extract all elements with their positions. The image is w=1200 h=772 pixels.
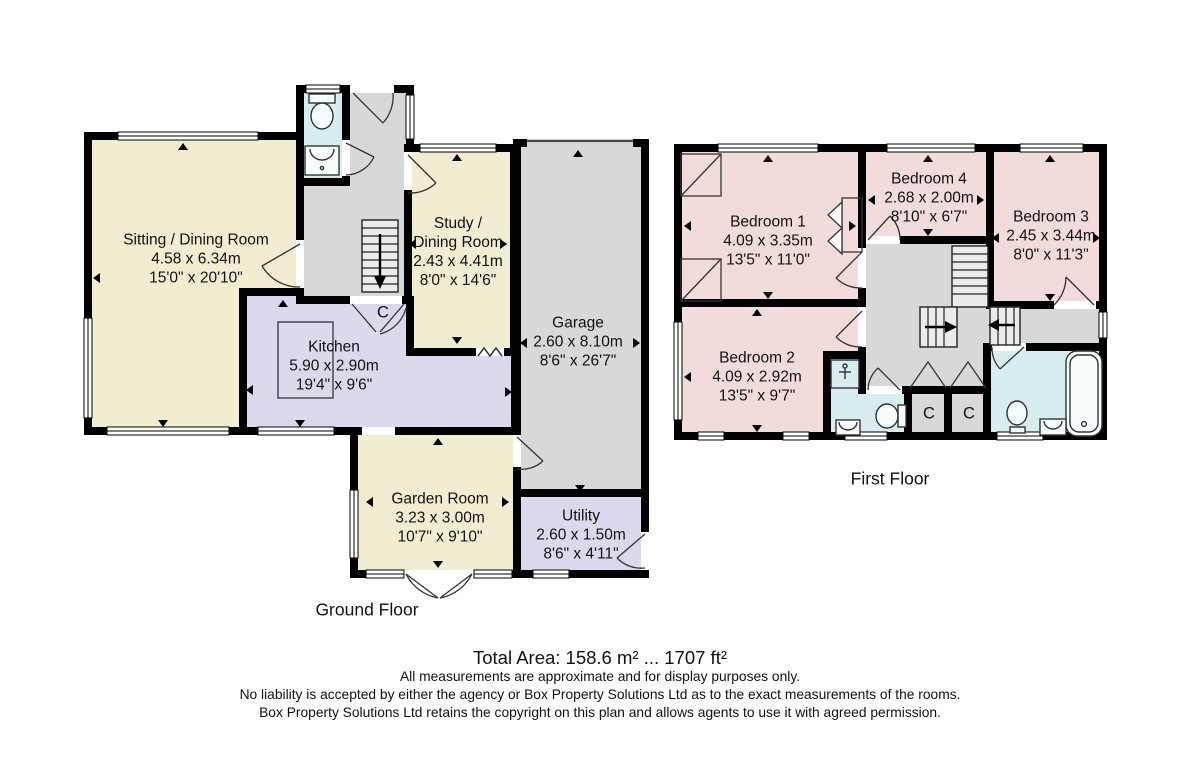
floorplan-page: Sitting / Dining Room 4.58 x 6.34m 15'0"… <box>0 0 1200 772</box>
ground-floor-title: Ground Floor <box>315 600 418 621</box>
room-label-garden: Garden Room 3.23 x 3.00m 10'7" x 9'10" <box>391 490 488 547</box>
disclaimer-line-3: Box Property Solutions Ltd retains the c… <box>259 705 941 720</box>
room-label-study: Study / Dining Room 2.43 x 4.41m 8'0" x … <box>413 214 503 290</box>
cupboard-label-first-1: C <box>923 405 935 424</box>
disclaimer-line-1: All measurements are approximate and for… <box>400 669 800 684</box>
toilet-icon-bathroom <box>1007 401 1027 433</box>
room-label-bedroom3: Bedroom 3 2.45 x 3.44m 8'0" x 11'3" <box>1006 208 1096 265</box>
room-label-kitchen: Kitchen 5.90 x 2.90m 19'4" x 9'6" <box>289 338 379 395</box>
room-label-bedroom4: Bedroom 4 2.68 x 2.00m 8'10" x 6'7" <box>884 170 974 227</box>
shower-icon <box>831 360 859 388</box>
room-label-utility: Utility 2.60 x 1.50m 8'6" x 4'11" <box>536 507 626 564</box>
bath-icon <box>1066 351 1102 436</box>
first-floor-title: First Floor <box>851 469 930 490</box>
garage-door <box>527 136 633 149</box>
toilet-icon-shower <box>876 404 906 428</box>
stairs-ground-icon <box>362 220 398 292</box>
room-label-sitting: Sitting / Dining Room 4.58 x 6.34m 15'0"… <box>123 231 269 288</box>
sink-icon-bathroom <box>1040 419 1066 435</box>
cupboard-label-first-2: C <box>963 405 975 424</box>
sink-icon-shower <box>836 420 860 435</box>
room-label-bedroom1: Bedroom 1 4.09 x 3.35m 13'5" x 11'0" <box>723 213 813 270</box>
room-label-garage: Garage 2.60 x 8.10m 8'6" x 26'7" <box>533 314 623 371</box>
toilet-icon-wc <box>309 94 335 129</box>
cupboard-label-ground: C <box>377 304 389 323</box>
total-area-text: Total Area: 158.6 m² ... 1707 ft² <box>473 647 727 669</box>
room-label-bedroom2: Bedroom 2 4.09 x 2.92m 13'5" x 9'7" <box>712 349 802 406</box>
sink-icon-wc <box>305 146 339 175</box>
disclaimer-line-2: No liability is accepted by either the a… <box>240 687 961 702</box>
